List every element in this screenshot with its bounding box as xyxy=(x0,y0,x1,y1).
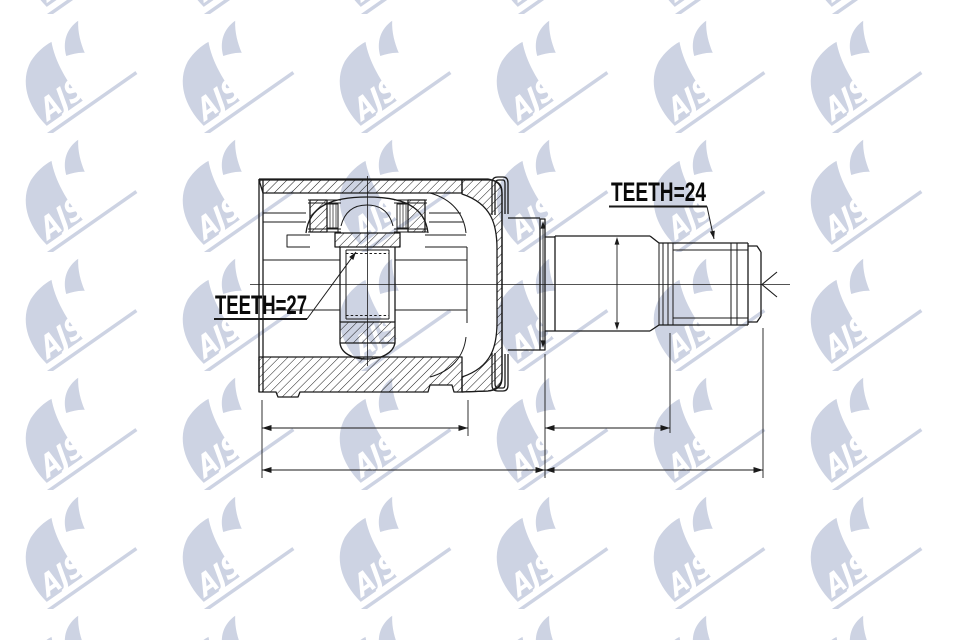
roller-right-hatched xyxy=(408,200,425,232)
housing-top-wall-hatched xyxy=(259,180,462,193)
drawing-canvas: AJS xyxy=(0,0,960,640)
teeth-27-label: TEETH=27 xyxy=(215,290,307,320)
cv-joint-technical-drawing: AJS xyxy=(0,0,960,640)
teeth-24-label: TEETH=24 xyxy=(611,177,706,207)
watermark-pattern-layer xyxy=(0,0,960,640)
roller-left-hatched xyxy=(310,200,327,232)
